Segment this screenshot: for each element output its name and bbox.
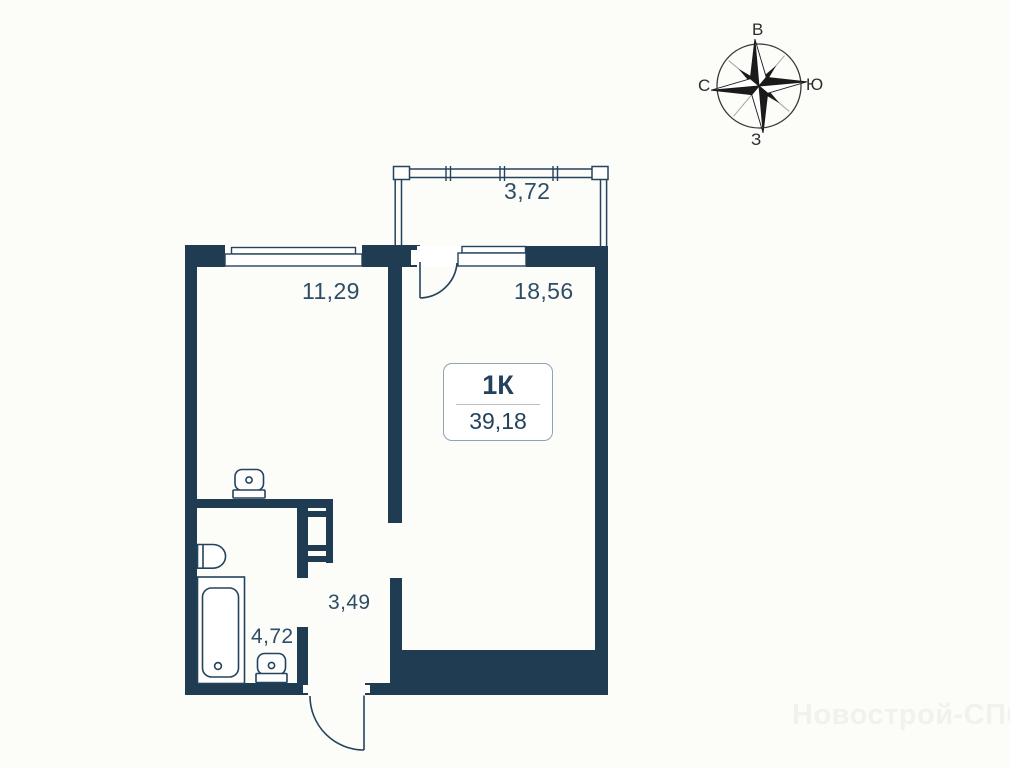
balcony-corner-post-left xyxy=(394,167,410,180)
wall-bathroom-top xyxy=(197,499,333,508)
compass-rose-icon xyxy=(707,35,811,137)
wall-bottom-left xyxy=(185,683,308,695)
wall-middle-lower xyxy=(390,578,402,650)
balcony-door-icon xyxy=(420,262,457,298)
area-label-room: 18,56 xyxy=(514,278,574,305)
window-living-room-icon xyxy=(225,248,362,267)
wall-left xyxy=(185,245,197,695)
compass-main-points xyxy=(707,35,811,137)
balcony-glazing xyxy=(394,166,609,248)
area-label-hallway: 3,49 xyxy=(328,591,370,615)
compass-label-left: С xyxy=(698,76,710,96)
compass-label-bottom: З xyxy=(751,130,761,150)
unit-box-divider xyxy=(456,404,540,405)
window-room-icon xyxy=(458,247,526,267)
compass-label-right: Ю xyxy=(806,75,823,95)
bathtub-icon xyxy=(198,577,245,684)
unit-total-area: 39,18 xyxy=(469,409,527,433)
area-label-bathroom: 4,72 xyxy=(251,625,293,649)
wall-right xyxy=(595,267,608,650)
sink-icon xyxy=(198,545,226,569)
unit-info-box: 1К 39,18 xyxy=(443,363,553,441)
entrance-door-icon xyxy=(310,696,364,751)
compass-label-top: В xyxy=(752,20,763,40)
wall-bathroom-right-lower xyxy=(297,627,308,683)
toilet-bottom-icon xyxy=(256,654,287,683)
unit-type-label: 1К xyxy=(482,371,514,399)
watermark-text: Новострой-СПб xyxy=(792,699,1010,732)
area-label-living-room: 11,29 xyxy=(302,278,360,305)
wall-bathroom-right-upper xyxy=(297,508,308,578)
wall-bottom-thick xyxy=(390,650,608,695)
toilet-top-icon xyxy=(233,470,265,499)
balcony-corner-post-right xyxy=(592,167,608,180)
area-label-balcony: 3,72 xyxy=(504,178,550,205)
wall-middle-upper xyxy=(388,267,402,523)
floor-plan-canvas: 3,72 11,29 18,56 3,49 4,72 1К 39,18 В С … xyxy=(0,0,1010,768)
vent-shaft-icon xyxy=(308,508,333,563)
